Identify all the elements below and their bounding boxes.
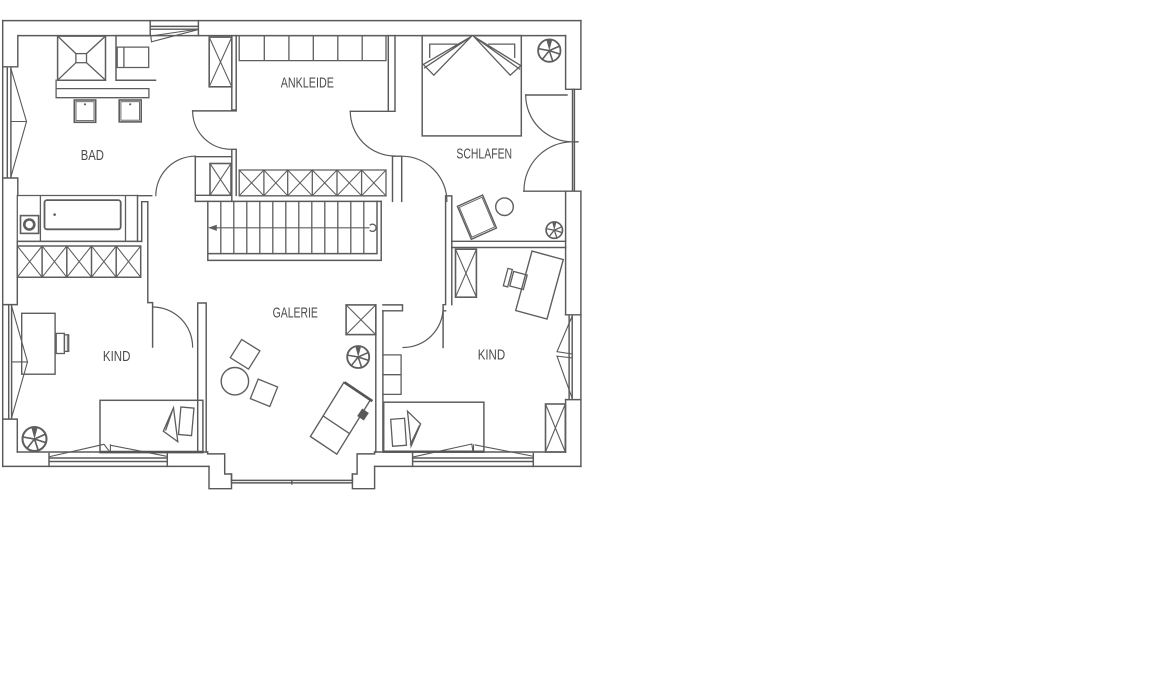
svg-text:BAD: BAD [81,148,104,164]
svg-text:GALERIE: GALERIE [273,305,318,321]
svg-text:KIND: KIND [478,348,506,364]
svg-text:ANKLEIDE: ANKLEIDE [281,76,334,92]
svg-text:SCHLAFEN: SCHLAFEN [456,147,512,163]
svg-text:KIND: KIND [103,349,130,365]
